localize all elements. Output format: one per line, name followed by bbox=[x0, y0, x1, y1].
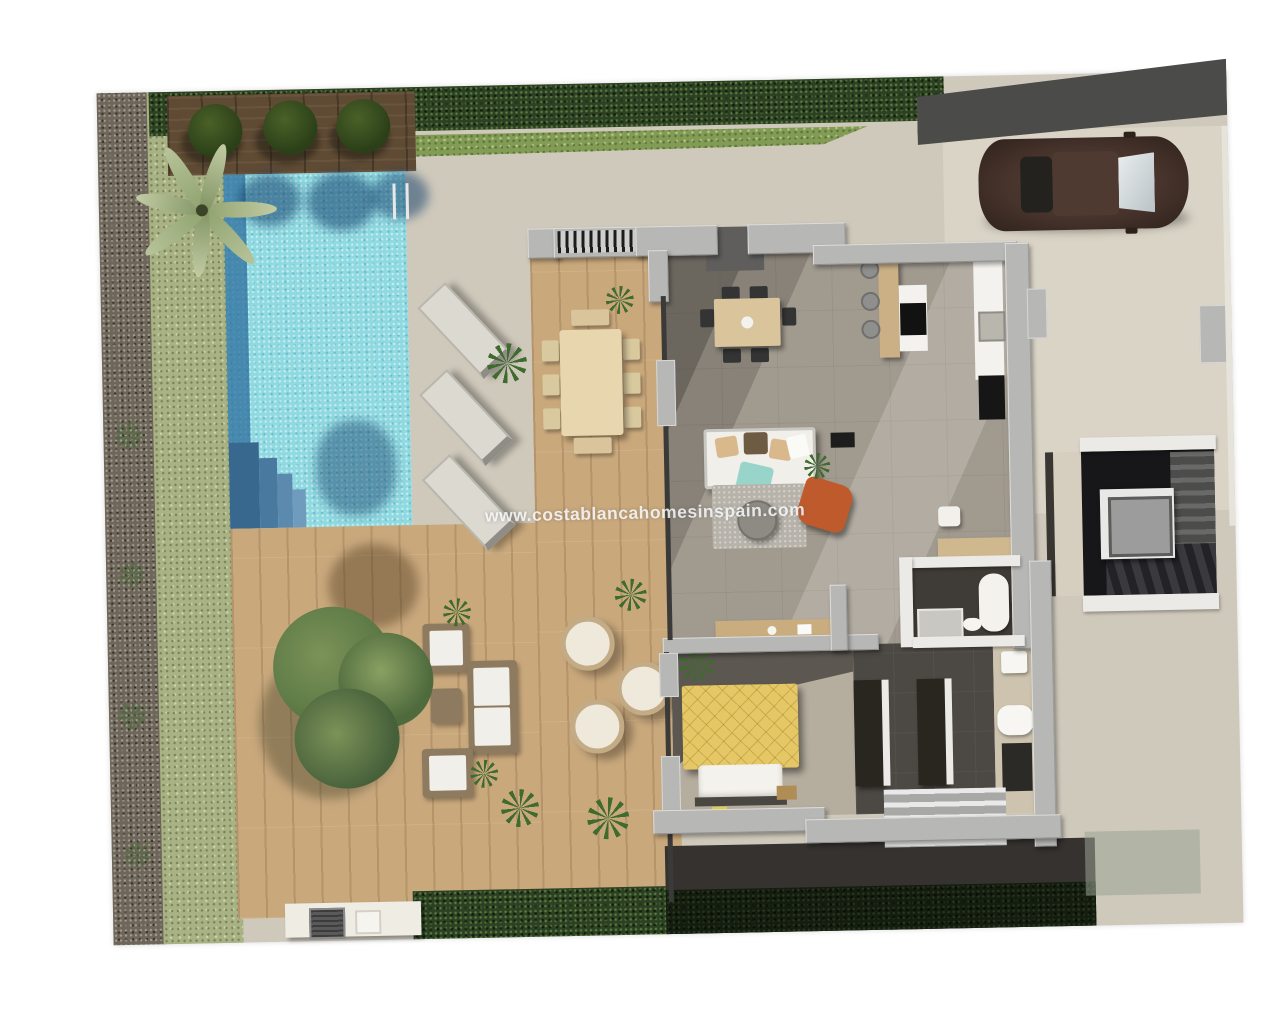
lower-dark-hedge bbox=[666, 882, 1097, 935]
bbq-grill bbox=[309, 908, 346, 940]
lounge-sofa-cushion bbox=[474, 707, 511, 746]
pergola-slats bbox=[557, 230, 639, 254]
stairwell-wall-bottom bbox=[1083, 593, 1219, 612]
pool-steps bbox=[293, 489, 307, 527]
bath-wall-v bbox=[899, 557, 914, 647]
outdoor-dining-chair bbox=[623, 373, 640, 394]
kitchen-window-sill bbox=[978, 311, 1006, 342]
wall-top-long bbox=[813, 241, 1017, 265]
bath-wall-h2 bbox=[913, 635, 1025, 648]
page: { "watermark": { "text": "www.costablanc… bbox=[0, 0, 1280, 1024]
pool-ladder-icon bbox=[392, 183, 409, 219]
car bbox=[978, 136, 1190, 232]
outdoor-bench bbox=[574, 437, 612, 454]
bath-wall-h bbox=[904, 555, 1020, 568]
indoor-dining-chair bbox=[723, 349, 741, 363]
pool-steps bbox=[259, 458, 278, 528]
pouf bbox=[938, 506, 960, 526]
outdoor-dining-chair bbox=[623, 339, 640, 360]
sofa-pillow bbox=[714, 435, 739, 458]
outdoor-bench bbox=[571, 309, 609, 326]
bbq-sink bbox=[355, 910, 381, 935]
car-rear-window bbox=[1020, 156, 1053, 213]
indoor-dining-chair bbox=[700, 309, 714, 327]
wardrobe bbox=[853, 680, 883, 787]
kitchen-island-bar bbox=[878, 261, 900, 357]
stairwell-wall-top bbox=[1080, 435, 1216, 452]
wall-right-lower bbox=[1029, 560, 1057, 846]
floor-plan-render: www.costablancahomesinspain.com bbox=[97, 71, 1244, 946]
bed-duvet bbox=[682, 683, 800, 769]
lounge-armchair-cushion bbox=[429, 630, 463, 666]
palm-tree bbox=[143, 145, 276, 278]
indoor-dining-chair bbox=[751, 348, 769, 362]
potted-plant bbox=[487, 343, 528, 384]
elevator-cab bbox=[1108, 496, 1173, 557]
glass-mullion bbox=[659, 653, 679, 697]
indoor-dining-chair bbox=[782, 307, 796, 325]
outdoor-dining-table bbox=[559, 329, 623, 436]
side-table-black bbox=[831, 432, 855, 447]
bathroom2-vanity bbox=[1002, 743, 1033, 792]
car-mirror bbox=[1125, 228, 1137, 234]
wall-bottom-left bbox=[653, 807, 825, 834]
green-stone-patch bbox=[1085, 829, 1201, 895]
wall-bottom-right bbox=[805, 814, 1061, 843]
lounge-sofa-cushion bbox=[473, 667, 510, 706]
bathroom2-bathtub bbox=[997, 705, 1034, 736]
nightstand bbox=[777, 786, 797, 800]
wall-divider-vert bbox=[830, 584, 848, 650]
bed-headboard bbox=[695, 796, 787, 807]
pool-steps bbox=[277, 474, 293, 528]
car-mirror bbox=[1124, 132, 1136, 138]
bed-pillows bbox=[698, 764, 783, 800]
outdoor-dining-chair bbox=[542, 340, 559, 361]
wall-stub bbox=[648, 250, 669, 302]
bathroom2-sink bbox=[1001, 651, 1027, 674]
sun-lounger bbox=[419, 369, 513, 466]
outdoor-dining-chair bbox=[542, 374, 559, 395]
decor-object bbox=[797, 624, 811, 634]
cooktop bbox=[900, 303, 927, 336]
lounge-ottoman bbox=[431, 688, 463, 724]
pool-palm-shadow bbox=[315, 419, 397, 516]
car-windshield bbox=[1118, 152, 1155, 213]
outdoor-dining-chair bbox=[543, 408, 560, 429]
lounge-armchair-cushion bbox=[429, 755, 467, 791]
window-box bbox=[1027, 288, 1048, 338]
bathroom1-bathtub bbox=[978, 573, 1009, 632]
outdoor-dining-chair bbox=[624, 407, 641, 428]
wardrobe bbox=[916, 679, 946, 786]
car-roof bbox=[1052, 151, 1119, 216]
sofa-pillow bbox=[743, 432, 767, 454]
glass-mullion bbox=[656, 360, 676, 426]
kitchen-appliance bbox=[978, 375, 1005, 420]
bbq-counter bbox=[285, 901, 422, 938]
pool-steps bbox=[229, 442, 261, 529]
